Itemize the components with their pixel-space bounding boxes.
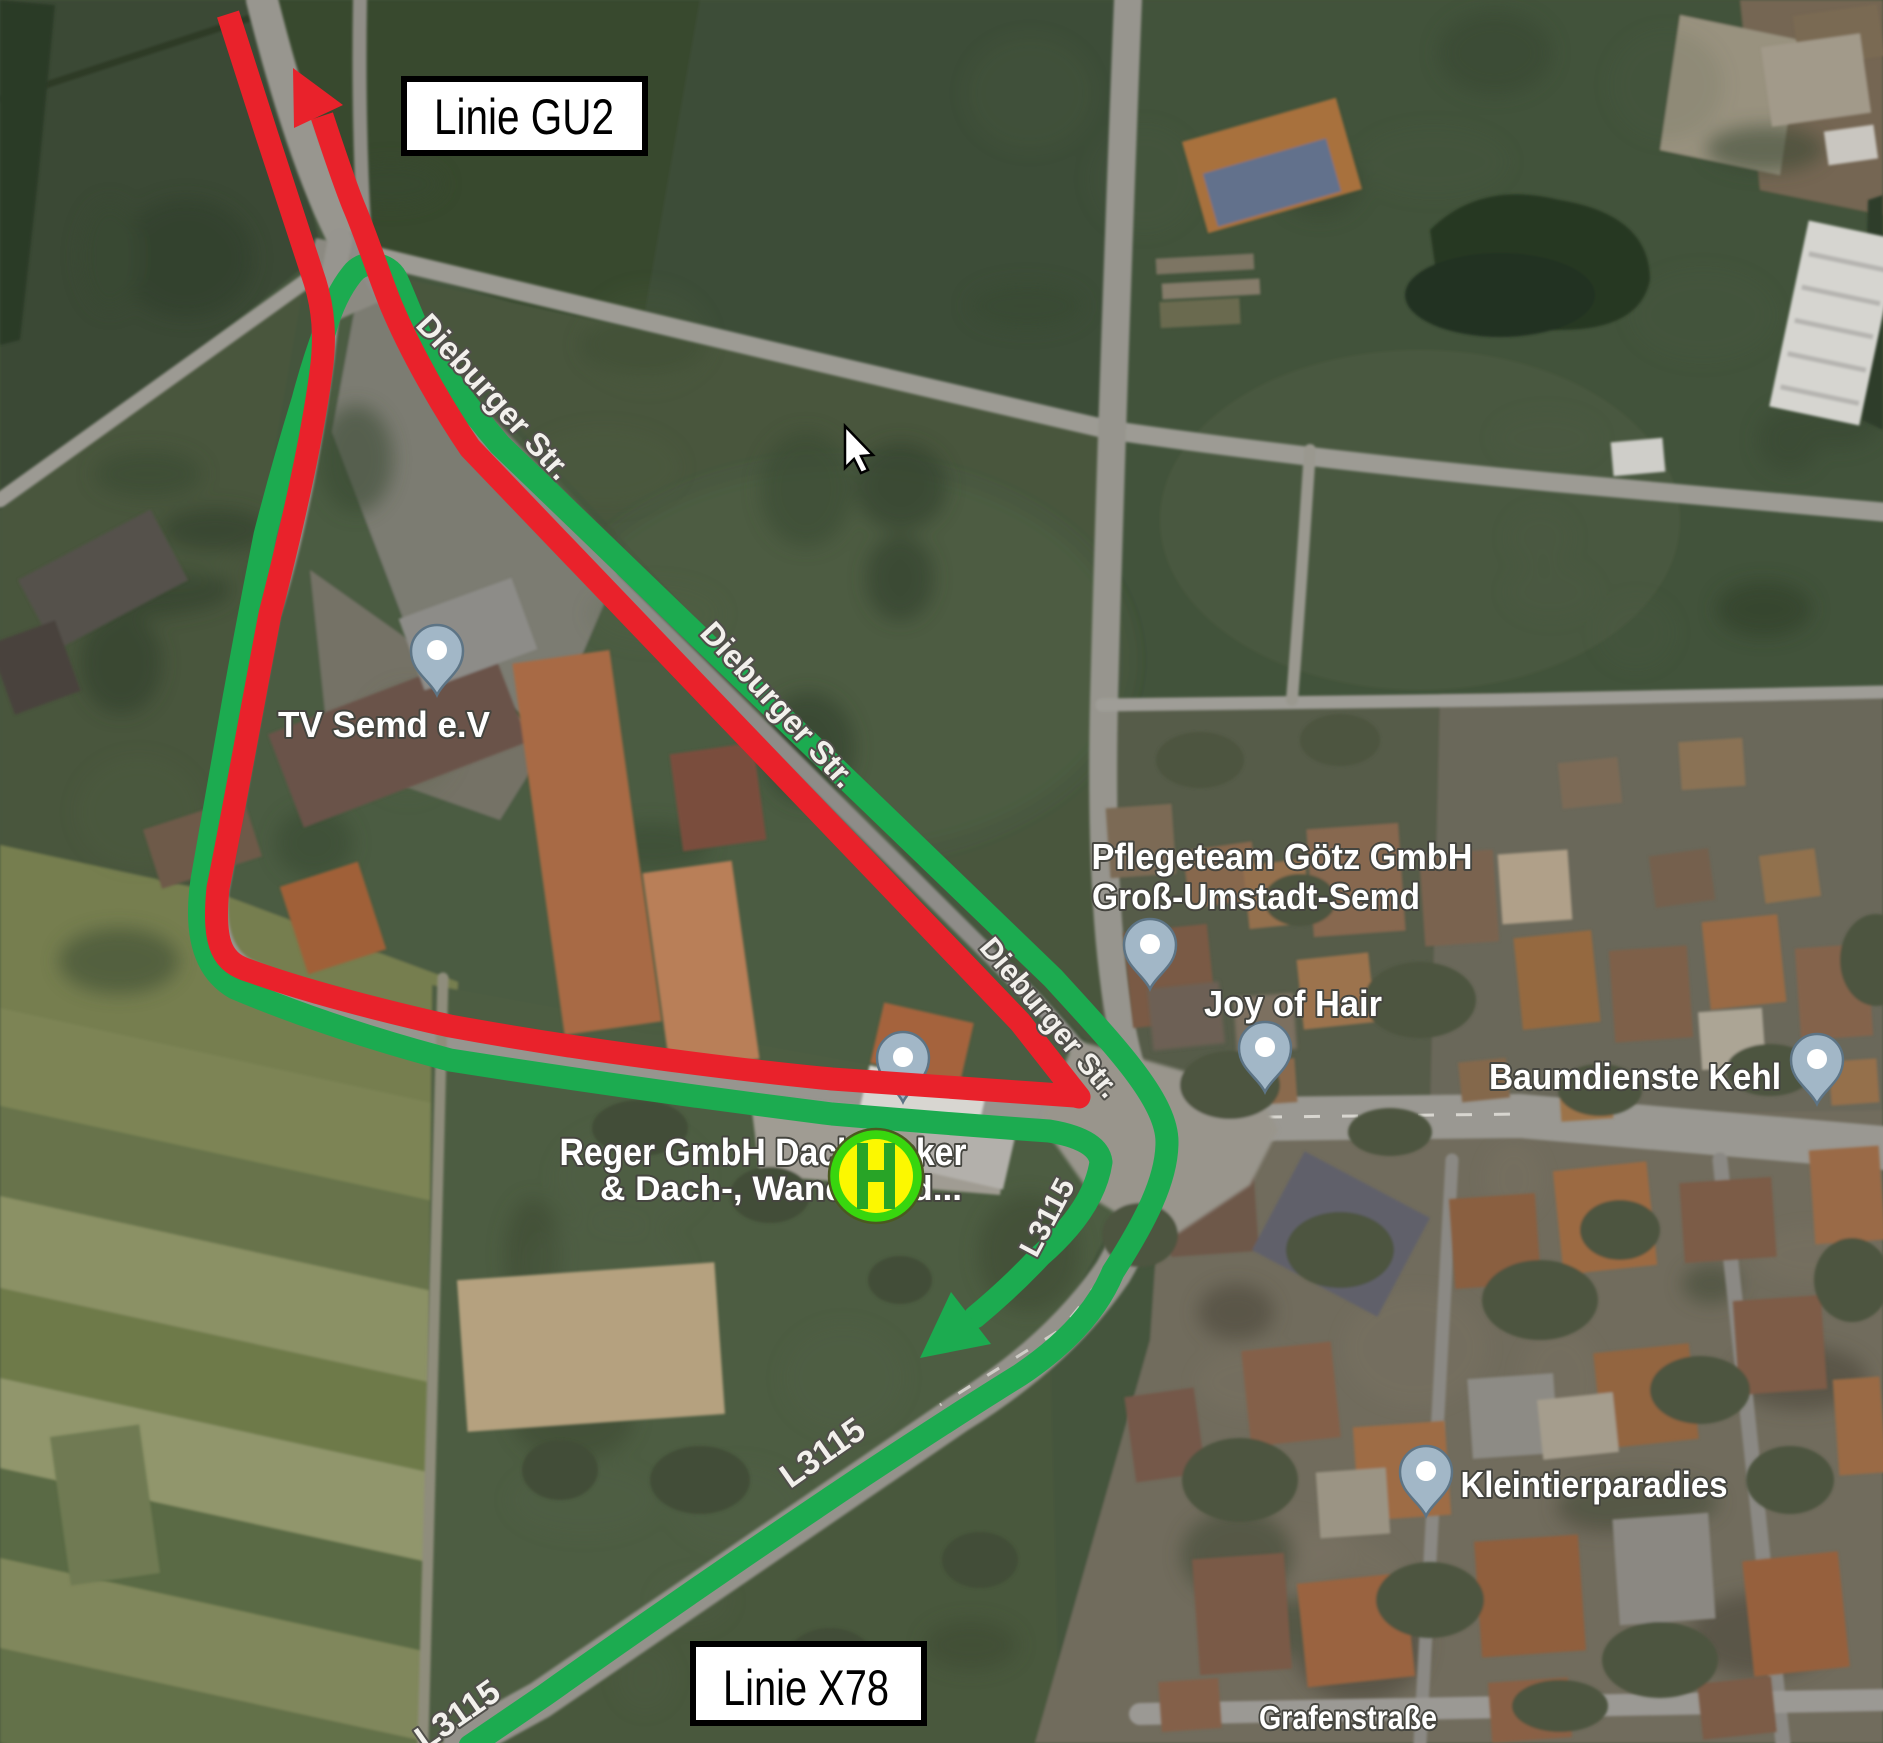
svg-text:Grafenstraße: Grafenstraße — [1259, 1699, 1437, 1736]
svg-text:Baumdienste Kehl: Baumdienste Kehl — [1489, 1056, 1781, 1097]
svg-text:TV Semd e.V: TV Semd e.V — [278, 704, 490, 745]
svg-text:Pflegeteam Götz GmbH: Pflegeteam Götz GmbH — [1092, 836, 1473, 877]
svg-text:Kleintierparadies: Kleintierparadies — [1461, 1464, 1728, 1505]
svg-text:Groß-Umstadt-Semd: Groß-Umstadt-Semd — [1092, 876, 1420, 917]
svg-text:Linie GU2: Linie GU2 — [434, 89, 614, 145]
svg-text:Linie X78: Linie X78 — [723, 1660, 889, 1716]
svg-text:Joy of Hair: Joy of Hair — [1204, 983, 1382, 1024]
